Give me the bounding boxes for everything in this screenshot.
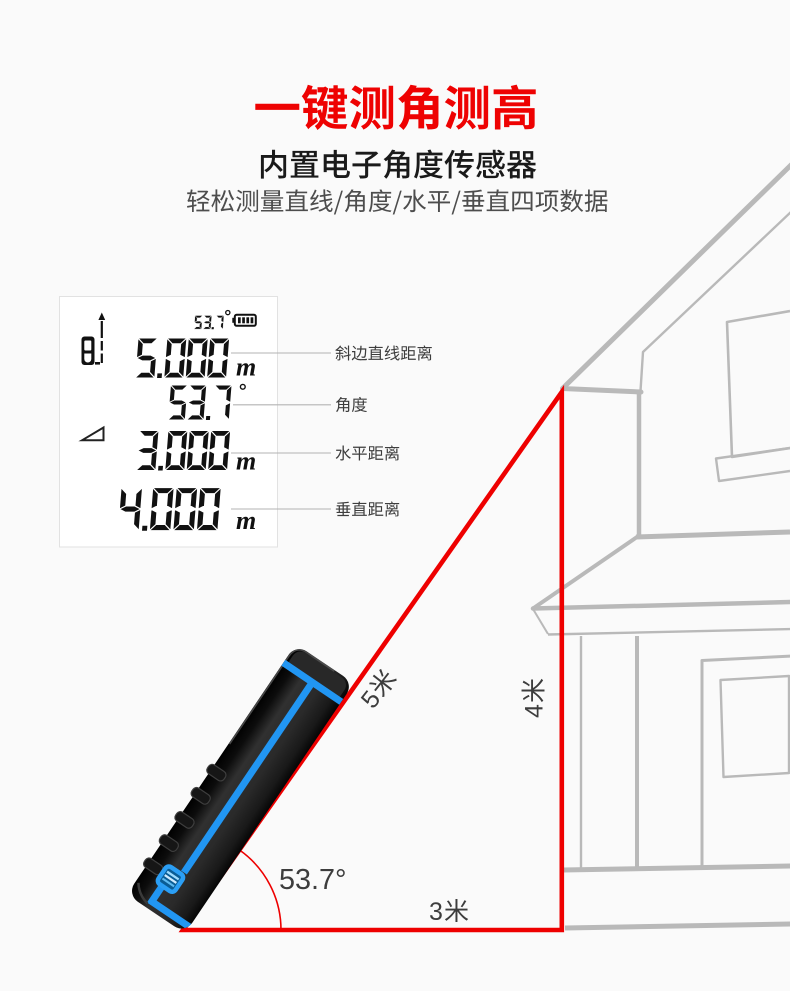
svg-text:3: 3 [429,898,443,926]
svg-text:m: m [236,353,256,382]
svg-text:m: m [236,447,256,476]
svg-text:m: m [236,506,256,535]
svg-text:4: 4 [521,704,549,718]
svg-text:53.7°: 53.7° [279,864,347,896]
